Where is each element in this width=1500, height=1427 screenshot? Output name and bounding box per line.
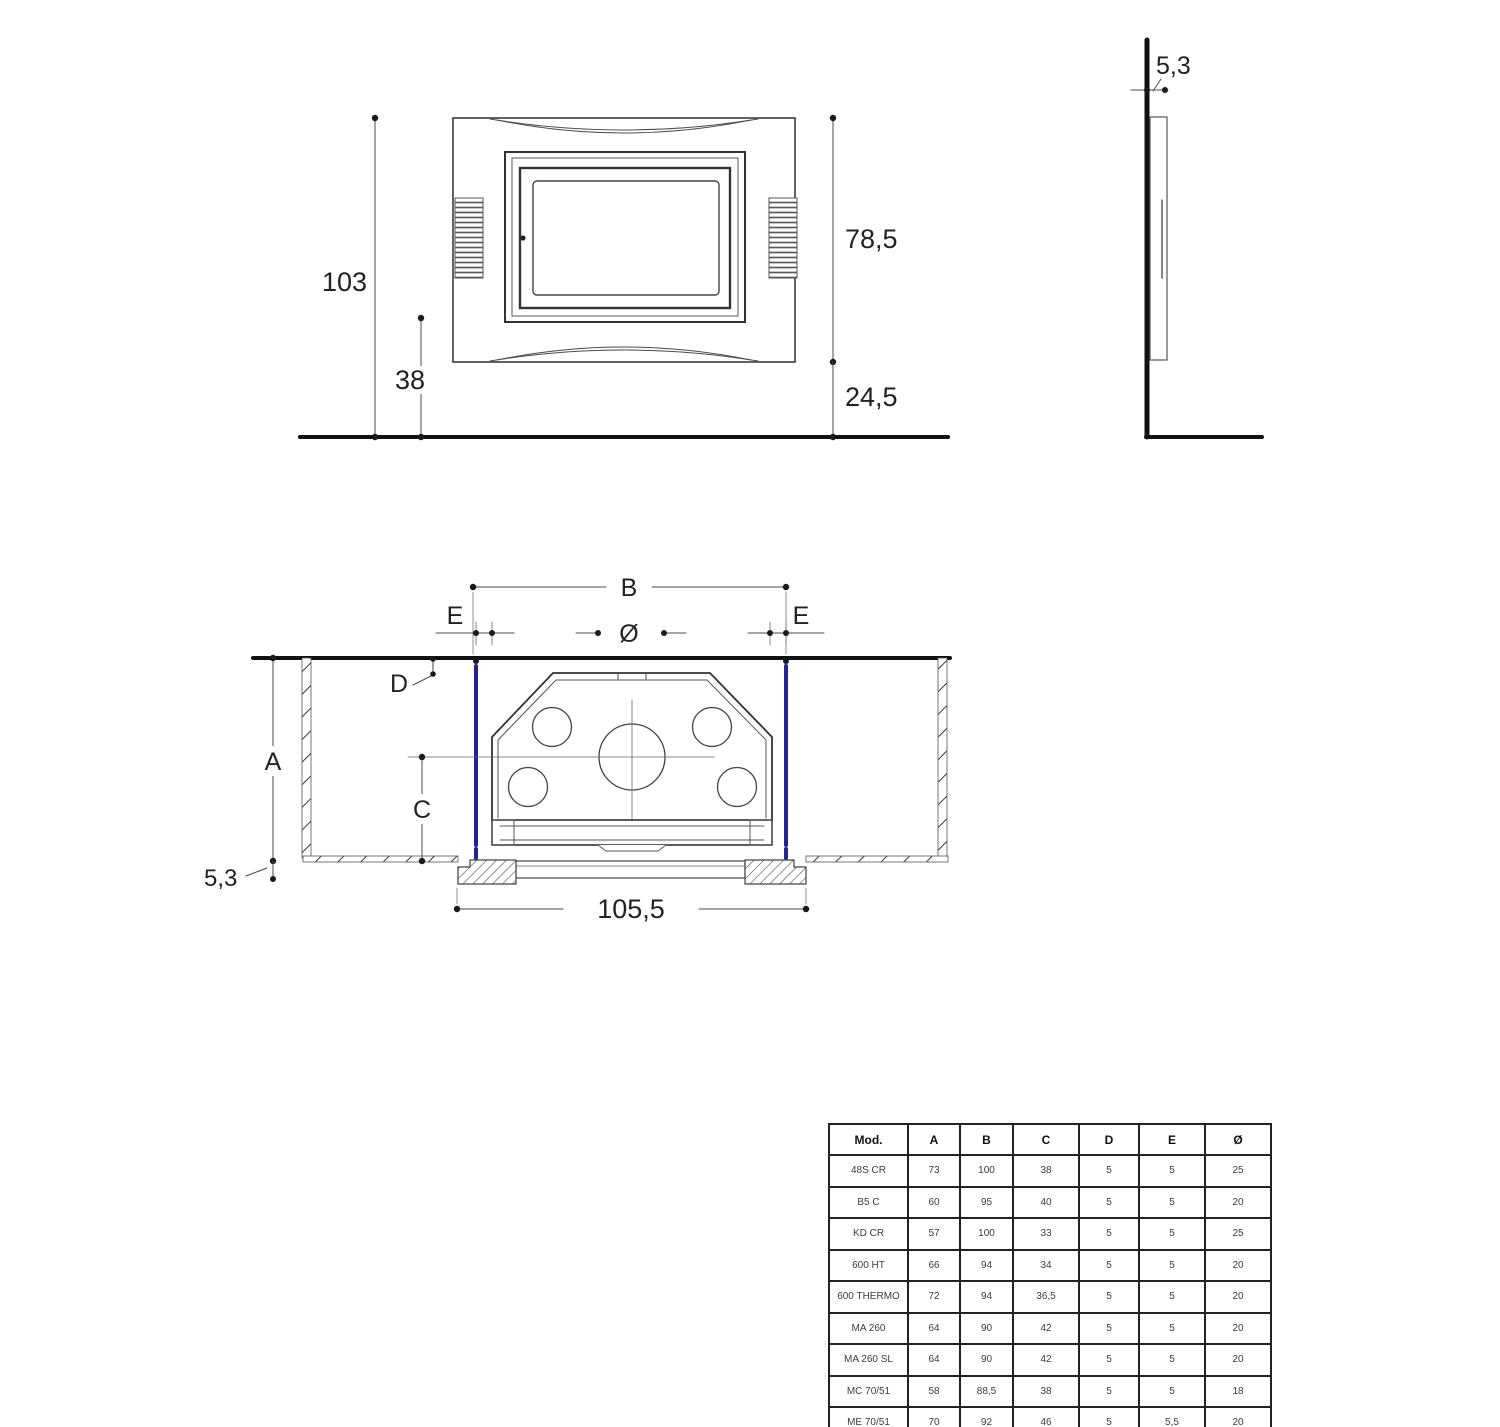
frame-height-label: 78,5 <box>845 224 898 254</box>
table-cell: 5 <box>1139 1376 1205 1408</box>
table-cell: 5,5 <box>1139 1407 1205 1427</box>
height-a-dimension: A <box>261 655 285 864</box>
table-cell: 5 <box>1139 1155 1205 1187</box>
table-cell: 48S CR <box>829 1155 908 1187</box>
table-cell: KD CR <box>829 1218 908 1250</box>
depth-d-dimension: D <box>390 656 436 698</box>
table-cell: 36,5 <box>1013 1281 1079 1313</box>
header-diameter: Ø <box>1205 1124 1271 1155</box>
table-cell: ME 70/51 <box>829 1407 908 1427</box>
height-a-label: A <box>265 748 282 776</box>
left-foot <box>458 860 516 884</box>
table-cell: 5 <box>1079 1376 1139 1408</box>
left-vent-grille <box>455 198 483 278</box>
lower-height-label: 38 <box>395 365 425 395</box>
table-cell: 5 <box>1139 1281 1205 1313</box>
section-view-drawing: B E E Ø <box>204 574 950 924</box>
header-d: D <box>1079 1124 1139 1155</box>
panel-thickness-label: 5,3 <box>1156 52 1191 80</box>
overall-width-label: 105,5 <box>597 894 665 924</box>
niche-shelf-right <box>806 856 948 862</box>
table-cell: 42 <box>1013 1313 1079 1345</box>
table-cell: MA 260 <box>829 1313 908 1345</box>
niche-shelf-left <box>303 856 458 862</box>
table-cell: 5 <box>1139 1313 1205 1345</box>
table-row: 600 HT6694345520 <box>829 1250 1271 1282</box>
header-e: E <box>1139 1124 1205 1155</box>
table-cell: 20 <box>1205 1281 1271 1313</box>
table-cell: 92 <box>960 1407 1013 1427</box>
insert-base <box>458 860 806 884</box>
side-panel-outline <box>1150 117 1167 360</box>
table-cell: 5 <box>1079 1250 1139 1282</box>
total-height-label: 103 <box>322 267 367 297</box>
width-b-label: B <box>621 574 638 602</box>
table-row: 48S CR73100385525 <box>829 1155 1271 1187</box>
table-row: MA 2606490425520 <box>829 1313 1271 1345</box>
table-cell: 90 <box>960 1344 1013 1376</box>
technical-drawing-page: 103 38 78,5 24,5 <box>0 0 1500 1427</box>
table-cell: 73 <box>908 1155 960 1187</box>
table-row: ME 70/5170924655,520 <box>829 1407 1271 1427</box>
overall-width-dimension: 105,5 <box>454 888 809 924</box>
table-row: MC 70/515888,5385518 <box>829 1376 1271 1408</box>
table-row: B5 C6095405520 <box>829 1187 1271 1219</box>
table-cell: 100 <box>960 1218 1013 1250</box>
model-dimensions-table: Mod. A B C D E Ø 48S CR73100385525B5 C60… <box>828 1123 1272 1427</box>
door-handle <box>520 235 525 240</box>
door-glass <box>533 181 719 295</box>
header-c: C <box>1013 1124 1079 1155</box>
base-depth-dimension: 5,3 <box>204 861 276 892</box>
table-cell: 94 <box>960 1250 1013 1282</box>
table-header-row: Mod. A B C D E Ø <box>829 1124 1271 1155</box>
table-cell: 5 <box>1139 1218 1205 1250</box>
total-height-dimension: 103 <box>322 115 378 440</box>
fireplace-dimension-drawing: 103 38 78,5 24,5 <box>0 0 1500 1110</box>
table-cell: 95 <box>960 1187 1013 1219</box>
table-cell: 5 <box>1079 1407 1139 1427</box>
gap-e-left-label: E <box>447 602 464 630</box>
table-cell: MC 70/51 <box>829 1376 908 1408</box>
table-cell: 34 <box>1013 1250 1079 1282</box>
table-cell: 18 <box>1205 1376 1271 1408</box>
frame-bottom-label: 24,5 <box>845 382 898 412</box>
depth-d-label: D <box>390 670 408 698</box>
table-cell: 5 <box>1139 1187 1205 1219</box>
height-c-dimension: C <box>410 754 434 864</box>
table-cell: 5 <box>1079 1281 1139 1313</box>
table-cell: 5 <box>1139 1344 1205 1376</box>
table-body: 48S CR73100385525B5 C6095405520KD CR5710… <box>829 1155 1271 1427</box>
table-cell: 42 <box>1013 1344 1079 1376</box>
header-mod: Mod. <box>829 1124 908 1155</box>
table-cell: 66 <box>908 1250 960 1282</box>
insert-front-frame <box>492 820 772 851</box>
table-cell: MA 260 SL <box>829 1344 908 1376</box>
table-cell: 90 <box>960 1313 1013 1345</box>
frame-height-dimension: 78,5 <box>830 115 898 365</box>
flue-diameter-label: Ø <box>619 620 638 648</box>
table-cell: 5 <box>1079 1218 1139 1250</box>
table-cell: 5 <box>1079 1313 1139 1345</box>
table-cell: 57 <box>908 1218 960 1250</box>
table-row: KD CR57100335525 <box>829 1218 1271 1250</box>
header-a: A <box>908 1124 960 1155</box>
frame-bottom-dimension: 24,5 <box>830 362 898 440</box>
table-cell: 600 HT <box>829 1250 908 1282</box>
table-cell: 72 <box>908 1281 960 1313</box>
table-cell: 46 <box>1013 1407 1079 1427</box>
front-view-drawing: 103 38 78,5 24,5 <box>300 115 948 440</box>
header-b: B <box>960 1124 1013 1155</box>
table-cell: 20 <box>1205 1344 1271 1376</box>
table-cell: 64 <box>908 1344 960 1376</box>
table-cell: 25 <box>1205 1155 1271 1187</box>
table-cell: 600 THERMO <box>829 1281 908 1313</box>
table-cell: 70 <box>908 1407 960 1427</box>
table-cell: 20 <box>1205 1313 1271 1345</box>
table-cell: 20 <box>1205 1187 1271 1219</box>
table-row: MA 260 SL6490425520 <box>829 1344 1271 1376</box>
flue-diameter-dimension: Ø <box>576 620 686 648</box>
gap-e-right-label: E <box>793 602 810 630</box>
table-cell: 5 <box>1079 1187 1139 1219</box>
niche-right-wall <box>938 658 947 858</box>
table-cell: 33 <box>1013 1218 1079 1250</box>
table-cell: 60 <box>908 1187 960 1219</box>
right-vent-grille <box>769 198 797 278</box>
lower-height-dimension: 38 <box>393 315 427 440</box>
base-depth-label: 5,3 <box>204 865 237 892</box>
table-cell: 25 <box>1205 1218 1271 1250</box>
table-cell: 38 <box>1013 1155 1079 1187</box>
niche-left-wall <box>302 658 311 858</box>
table-cell: 20 <box>1205 1250 1271 1282</box>
right-foot <box>745 860 806 884</box>
table-cell: 38 <box>1013 1376 1079 1408</box>
table-cell: B5 C <box>829 1187 908 1219</box>
table-cell: 5 <box>1079 1155 1139 1187</box>
side-view-drawing: 5,3 <box>1131 40 1262 437</box>
table-cell: 58 <box>908 1376 960 1408</box>
table-cell: 100 <box>960 1155 1013 1187</box>
table-row: 600 THERMO729436,55520 <box>829 1281 1271 1313</box>
table-cell: 64 <box>908 1313 960 1345</box>
table-cell: 5 <box>1079 1344 1139 1376</box>
height-c-label: C <box>413 796 431 824</box>
table-cell: 20 <box>1205 1407 1271 1427</box>
gap-e-left-dimension: E <box>436 602 514 645</box>
table-cell: 40 <box>1013 1187 1079 1219</box>
table-cell: 88,5 <box>960 1376 1013 1408</box>
panel-thickness-dimension: 5,3 <box>1131 52 1191 93</box>
table-cell: 94 <box>960 1281 1013 1313</box>
table-cell: 5 <box>1139 1250 1205 1282</box>
